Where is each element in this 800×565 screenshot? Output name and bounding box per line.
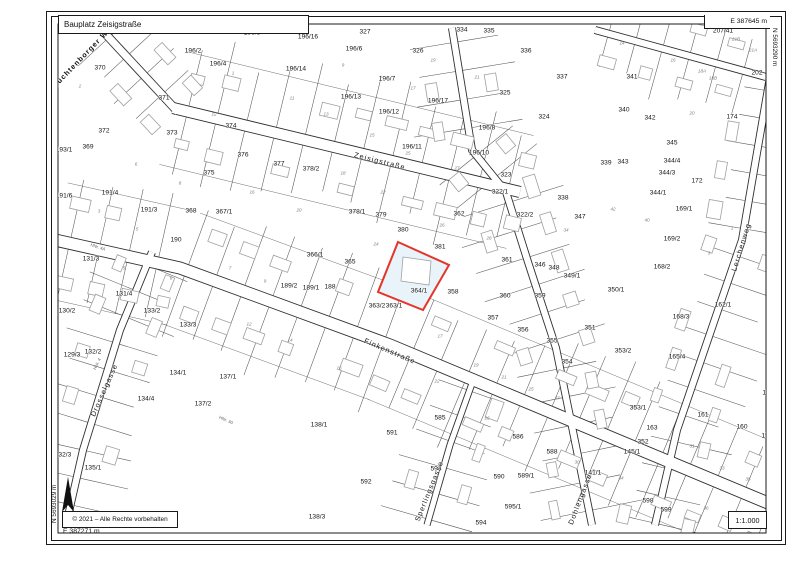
parcel-label: 172	[691, 178, 702, 185]
parcel-label: 350/1	[608, 287, 625, 294]
northing-left-label: N 5693029 m	[51, 485, 58, 523]
parcel-label: 363/1	[386, 303, 403, 310]
house-number-hint-label: HNr. 4A	[90, 242, 106, 252]
parcel-label: 163	[646, 425, 657, 432]
parcel-label: 374	[225, 123, 236, 130]
parcel-label: 341	[626, 74, 637, 81]
parcel-label: 378/2	[303, 166, 320, 173]
parcel-label: 138/3	[309, 514, 326, 521]
parcel-label: 365	[344, 259, 355, 266]
house-number-label: 36	[703, 506, 708, 511]
house-number-label: 1	[731, 226, 734, 231]
parcel-label: 340	[618, 107, 629, 114]
easting-top-label: E 387645 m	[730, 18, 767, 25]
title-box: Bauplatz Zeisigstraße	[58, 15, 309, 34]
parcel-label: 381	[434, 244, 445, 251]
house-number-label: 21B	[732, 37, 740, 42]
parcel-label: 188	[324, 284, 335, 291]
parcel-label: 355	[546, 338, 557, 345]
parcel-label: 342	[644, 115, 655, 122]
parcel-label: 339	[600, 160, 611, 167]
house-number-label: 6	[135, 162, 138, 167]
parcel-label: 134/4	[138, 396, 155, 403]
house-number-label: 8	[179, 181, 182, 186]
parcel-label: 196/14	[286, 66, 306, 73]
parcel-label: 325	[499, 90, 510, 97]
parcel-label: 586	[512, 434, 523, 441]
parcel-label: 191/4	[102, 190, 119, 197]
house-number-label: 7	[229, 266, 232, 271]
parcel-label: 169/1	[676, 206, 693, 213]
house-number-label: 30	[574, 460, 579, 465]
house-number-label: 16	[336, 366, 341, 371]
parcel-label: 131/4	[116, 291, 133, 298]
parcel-label: 15	[762, 390, 766, 397]
copyright-box: © 2021 – Alle Rechte vorbehalten	[62, 511, 178, 528]
parcel-label: 160	[736, 424, 747, 431]
parcel-label: 344/1	[650, 190, 667, 197]
parcel-label: 361	[501, 257, 512, 264]
parcel-label: 369	[82, 144, 93, 151]
parcel-label: 196/7	[379, 76, 396, 83]
parcel-label: 334	[456, 27, 467, 34]
house-number-label: 9	[342, 63, 345, 68]
parcel-label: 354	[561, 359, 572, 366]
parcel-label: 327	[359, 29, 370, 36]
parcel-label: 137/1	[220, 374, 237, 381]
parcel-label: 362	[453, 211, 464, 218]
house-number-label: 16	[249, 190, 254, 195]
parcel-label: 590	[493, 474, 504, 481]
parcel-label: 347	[574, 214, 585, 221]
parcel-label: 375	[203, 170, 214, 177]
house-number-label: 20	[689, 111, 694, 116]
house-number-label: 18	[340, 171, 345, 176]
parcel-label: 343	[617, 159, 628, 166]
parcel-label: 191/3	[141, 207, 158, 214]
parcel-label: 589/1	[518, 473, 535, 480]
street-label: Zeisigstraße	[353, 150, 406, 171]
house-number-label: 42	[610, 207, 615, 212]
parcel-label: 337	[556, 74, 567, 81]
parcel-label: 348	[548, 265, 559, 272]
parcel-label: 131/3	[83, 256, 100, 263]
parcel-label: 338	[557, 195, 568, 202]
house-number-label: 12	[211, 112, 216, 117]
house-number-label: 34	[618, 476, 623, 481]
house-number-label: 24	[373, 242, 378, 247]
house-number-label: 40	[644, 218, 649, 223]
parcel-label: 380	[397, 227, 408, 234]
house-number-label: 31	[689, 444, 694, 449]
parcel-label: 130/2	[59, 308, 76, 315]
parcel-label: 376	[237, 152, 248, 159]
parcel-label: 366/1	[307, 252, 324, 259]
house-number-label: 21	[501, 375, 506, 380]
parcel-label: 189/2	[281, 283, 298, 290]
house-number-label: 2	[79, 84, 82, 89]
house-number-label: 25	[528, 387, 533, 392]
parcel-label: 161	[697, 412, 708, 419]
house-number-label: 25	[405, 151, 410, 156]
house-number-label: 17	[437, 334, 442, 339]
parcel-label: 353/2	[615, 348, 632, 355]
parcel-label: 357	[487, 315, 498, 322]
street-label: Dohlengasse	[566, 472, 594, 526]
parcel-label: 193/1	[58, 147, 72, 154]
parcel-label: 129/3	[64, 352, 81, 359]
parcel-label: 168/3	[673, 314, 690, 321]
parcel-label: 322/2	[517, 212, 534, 219]
house-number-label: 3	[708, 251, 711, 256]
house-number-label: 28	[486, 236, 491, 241]
parcel-label: 196/2	[185, 48, 202, 55]
easting-bottom-label: E 387271 m	[63, 528, 100, 535]
house-number-label: 22	[434, 379, 439, 384]
parcel-label: 202	[751, 70, 762, 77]
house-number-label: 14	[287, 338, 292, 343]
parcel-label: 191/6	[58, 193, 72, 200]
parcel-label: 359	[534, 293, 545, 300]
street-label: Sperlingsgasse	[413, 459, 446, 522]
parcel-label: 132/2	[85, 349, 102, 356]
plan-page: 370196/2196/5196/16327334335326336196/41…	[0, 0, 800, 565]
parcel-label: 591	[386, 430, 397, 437]
house-number-hint-label: HNr. 4	[92, 357, 102, 370]
house-number-label: 19	[473, 363, 478, 368]
parcel-label: 133/2	[144, 308, 161, 315]
parcel-label: 372	[98, 128, 109, 135]
parcel-label: 352	[637, 439, 648, 446]
house-number-label: 17	[410, 86, 415, 91]
map-labels-layer: 370196/2196/5196/16327334335326336196/41…	[58, 24, 766, 533]
house-number-hint-label: HNr. 30	[218, 415, 234, 426]
parcel-label: 196/4	[210, 61, 227, 68]
parcel-label: 379	[375, 212, 386, 219]
parcel-label: 349/1	[564, 273, 581, 280]
parcel-label: 322/1	[492, 189, 509, 196]
parcel-label: 373	[166, 130, 177, 137]
house-number-label: 12	[246, 322, 251, 327]
house-number-label: 14	[619, 41, 624, 46]
parcel-label: 335	[483, 28, 494, 35]
parcel-label: 344/3	[659, 170, 676, 177]
house-number-label: 21A	[749, 48, 757, 53]
parcel-label: 585	[434, 415, 445, 422]
parcel-label: 138/1	[311, 422, 328, 429]
street-label: Finkenstraße	[363, 336, 417, 366]
parcel-label: 162/1	[715, 302, 732, 309]
parcel-label: 358	[447, 289, 458, 296]
parcel-label: 137/2	[195, 401, 212, 408]
parcel-label: 169/2	[664, 236, 681, 243]
parcel-label: 378/1	[349, 209, 366, 216]
parcel-label: 196/10	[469, 150, 489, 157]
house-number-label: 16	[670, 58, 675, 63]
parcel-label: 134/1	[170, 370, 187, 377]
parcel-label: 588	[546, 449, 557, 456]
house-number-label: 18B	[709, 76, 717, 81]
house-number-label: 26	[484, 416, 489, 421]
house-number-label: 6	[170, 276, 173, 281]
house-number-label: 20	[296, 208, 301, 213]
parcel-label: 595/1	[505, 504, 522, 511]
parcel-label: 174	[726, 114, 737, 121]
house-number-label: 27	[454, 166, 459, 171]
parcel-label: 323	[500, 172, 511, 179]
parcel-label: 196/8	[479, 125, 496, 132]
parcel-label: 196/12	[379, 109, 399, 116]
house-number-label: 15	[369, 133, 374, 138]
copyright-label: © 2021 – Alle Rechte vorbehalten	[72, 516, 167, 523]
parcel-label: 367/1	[216, 209, 233, 216]
house-number-label: 13	[323, 112, 328, 117]
parcel-label: 324	[538, 114, 549, 121]
parcel-label: 598	[642, 498, 653, 505]
house-number-label: 21	[474, 75, 479, 80]
parcel-label: 371	[158, 95, 169, 102]
parcel-label: 360	[499, 293, 510, 300]
parcel-label: 132/3	[58, 452, 71, 459]
house-number-label: 35	[745, 477, 750, 482]
house-number-label: 5	[123, 266, 126, 271]
parcel-label: 336	[520, 48, 531, 55]
parcel-label: 363/2	[369, 303, 386, 310]
house-number-label: 18A	[698, 69, 706, 74]
scale-box: 1:1.000	[728, 511, 767, 529]
parcel-label: 196/6	[346, 46, 363, 53]
parcel-label: 592	[360, 479, 371, 486]
parcel-label: 196/17	[428, 98, 448, 105]
parcel-label: 165/4	[669, 354, 686, 361]
parcel-label: 196/16	[298, 34, 318, 41]
house-number-label: 1	[232, 71, 235, 76]
house-number-label: 19	[430, 58, 435, 63]
parcel-label: 356	[517, 327, 528, 334]
parcel-label: 15	[761, 433, 766, 440]
parcel-label: 345	[666, 140, 677, 147]
parcel-label: 364/1	[411, 288, 428, 295]
house-number-label: 22	[380, 190, 385, 195]
parcel-label: 196/13	[341, 94, 361, 101]
easting-top-box: E 387645 m	[704, 15, 770, 29]
parcel-label: 168/2	[654, 264, 671, 271]
page-title: Bauplatz Zeisigstraße	[64, 20, 141, 29]
house-number-label: 27	[554, 396, 559, 401]
house-number-label: 33	[719, 466, 724, 471]
parcel-label: 196/11	[402, 144, 422, 151]
parcel-label: 377	[273, 161, 284, 168]
parcel-label: 370	[94, 65, 105, 72]
parcel-label: 145/1	[624, 449, 641, 456]
house-number-label: 5	[136, 227, 139, 232]
parcel-label: 135/1	[85, 465, 102, 472]
parcel-label: 190	[170, 237, 181, 244]
parcel-label: 353/1	[630, 405, 647, 412]
parcel-label: 326	[412, 48, 423, 55]
parcel-label: 368	[185, 208, 196, 215]
parcel-label: 351	[584, 325, 595, 332]
parcel-label: 346	[534, 262, 545, 269]
house-number-label: 11	[290, 96, 295, 101]
house-number-label: 34	[563, 228, 568, 233]
northing-right-label: N 5693290 m	[771, 28, 778, 66]
parcel-label: 189/1	[303, 285, 320, 292]
house-number-label: 26	[439, 223, 444, 228]
parcel-label: 344/4	[664, 158, 681, 165]
parcel-label: 133/3	[180, 322, 197, 329]
street-label: Drosselgasse	[88, 362, 119, 418]
parcel-label: 594	[475, 520, 486, 527]
parcel-label: 599	[660, 507, 671, 514]
house-number-label: 3	[98, 209, 101, 214]
scale-label: 1:1.000	[736, 516, 760, 525]
house-number-label: 9	[264, 279, 267, 284]
